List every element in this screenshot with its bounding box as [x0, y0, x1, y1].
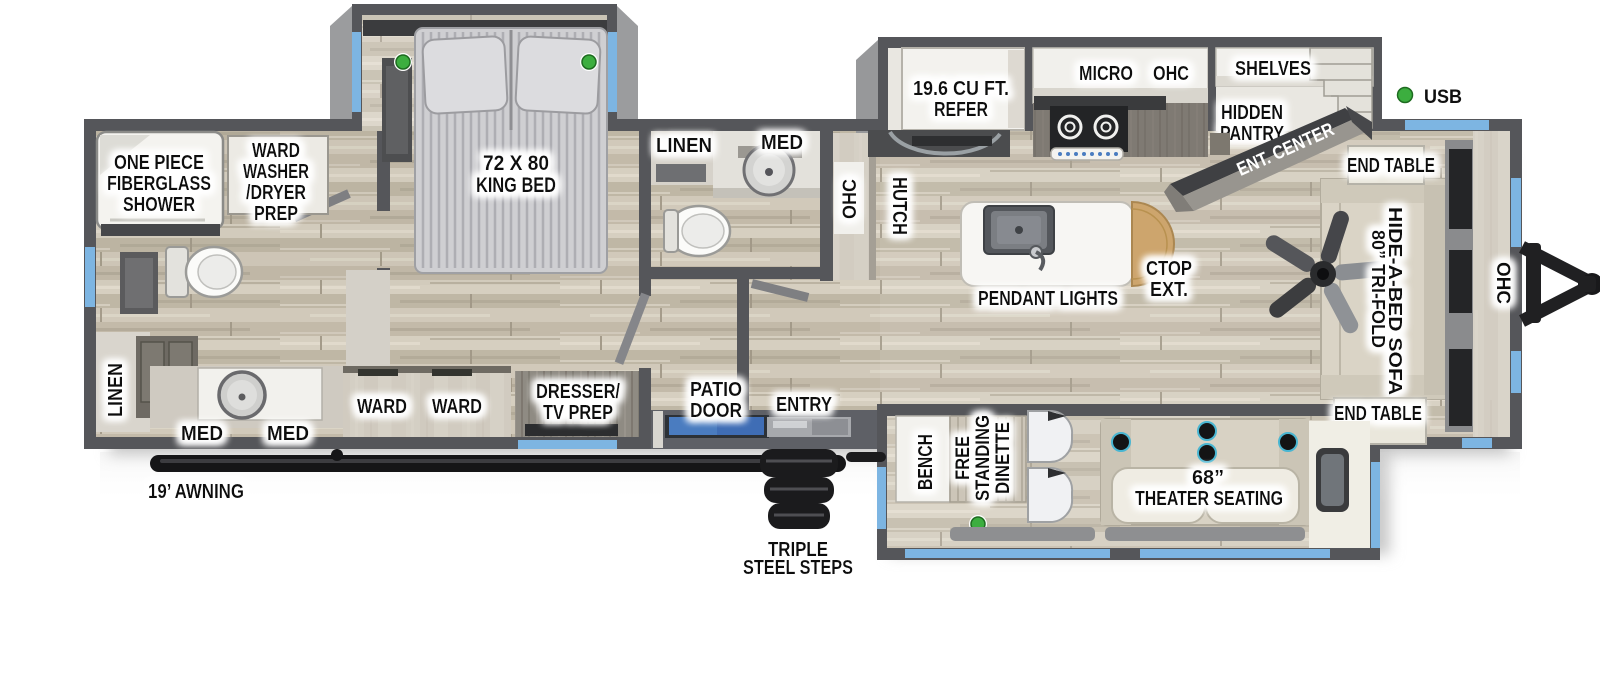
svg-text:PREP: PREP	[254, 203, 298, 225]
svg-text:PENDANT LIGHTS: PENDANT LIGHTS	[978, 288, 1118, 310]
svg-text:SHOWER: SHOWER	[123, 194, 195, 216]
svg-text:MED: MED	[267, 423, 309, 445]
svg-text:MED: MED	[761, 132, 803, 154]
svg-text:DRESSER/: DRESSER/	[536, 381, 620, 403]
svg-text:THEATER SEATING: THEATER SEATING	[1135, 488, 1283, 510]
svg-text:BENCH: BENCH	[915, 434, 937, 490]
svg-text:DINETTE: DINETTE	[993, 422, 1014, 494]
svg-text:OHC: OHC	[840, 179, 861, 219]
svg-text:FREE: FREE	[953, 436, 974, 480]
svg-text:WARD: WARD	[432, 396, 482, 418]
svg-text:KING BED: KING BED	[476, 174, 556, 197]
svg-text:80” TRI-FOLD: 80” TRI-FOLD	[1368, 230, 1388, 348]
svg-text:PATIO: PATIO	[690, 379, 742, 401]
svg-text:DOOR: DOOR	[690, 400, 742, 422]
svg-text:STANDING: STANDING	[973, 415, 994, 501]
svg-text:CTOP: CTOP	[1146, 258, 1192, 280]
svg-text:19.6 CU FT.: 19.6 CU FT.	[913, 78, 1009, 100]
svg-text:EXT.: EXT.	[1150, 279, 1188, 301]
svg-text:19’ AWNING: 19’ AWNING	[148, 481, 244, 503]
svg-text:WARD: WARD	[357, 396, 407, 418]
svg-text:OHC: OHC	[1153, 63, 1189, 85]
svg-text:WASHER: WASHER	[243, 161, 309, 183]
svg-text:LINEN: LINEN	[656, 135, 712, 157]
svg-text:MICRO: MICRO	[1079, 63, 1133, 85]
svg-text:72 X 80: 72 X 80	[483, 152, 549, 175]
svg-text:SHELVES: SHELVES	[1235, 58, 1311, 80]
svg-text:MED: MED	[181, 423, 223, 445]
svg-text:LINEN: LINEN	[105, 363, 127, 417]
svg-text:FIBERGLASS: FIBERGLASS	[107, 173, 211, 195]
svg-text:STEEL STEPS: STEEL STEPS	[743, 557, 853, 579]
svg-text:WARD: WARD	[252, 140, 300, 162]
svg-text:68”: 68”	[1192, 467, 1224, 489]
svg-text:ENTRY: ENTRY	[776, 394, 833, 416]
svg-text:HIDDEN: HIDDEN	[1221, 102, 1283, 124]
svg-text:HUTCH: HUTCH	[888, 177, 910, 235]
svg-text:/DRYER: /DRYER	[246, 182, 306, 204]
svg-text:REFER: REFER	[934, 99, 988, 121]
svg-text:END TABLE: END TABLE	[1347, 155, 1435, 177]
svg-text:TV PREP: TV PREP	[543, 402, 613, 424]
svg-text:HIDE-A-BED SOFA: HIDE-A-BED SOFA	[1385, 207, 1405, 395]
svg-text:ONE PIECE: ONE PIECE	[114, 152, 204, 174]
svg-text:USB: USB	[1424, 87, 1462, 108]
svg-text:OHC: OHC	[1492, 262, 1513, 304]
